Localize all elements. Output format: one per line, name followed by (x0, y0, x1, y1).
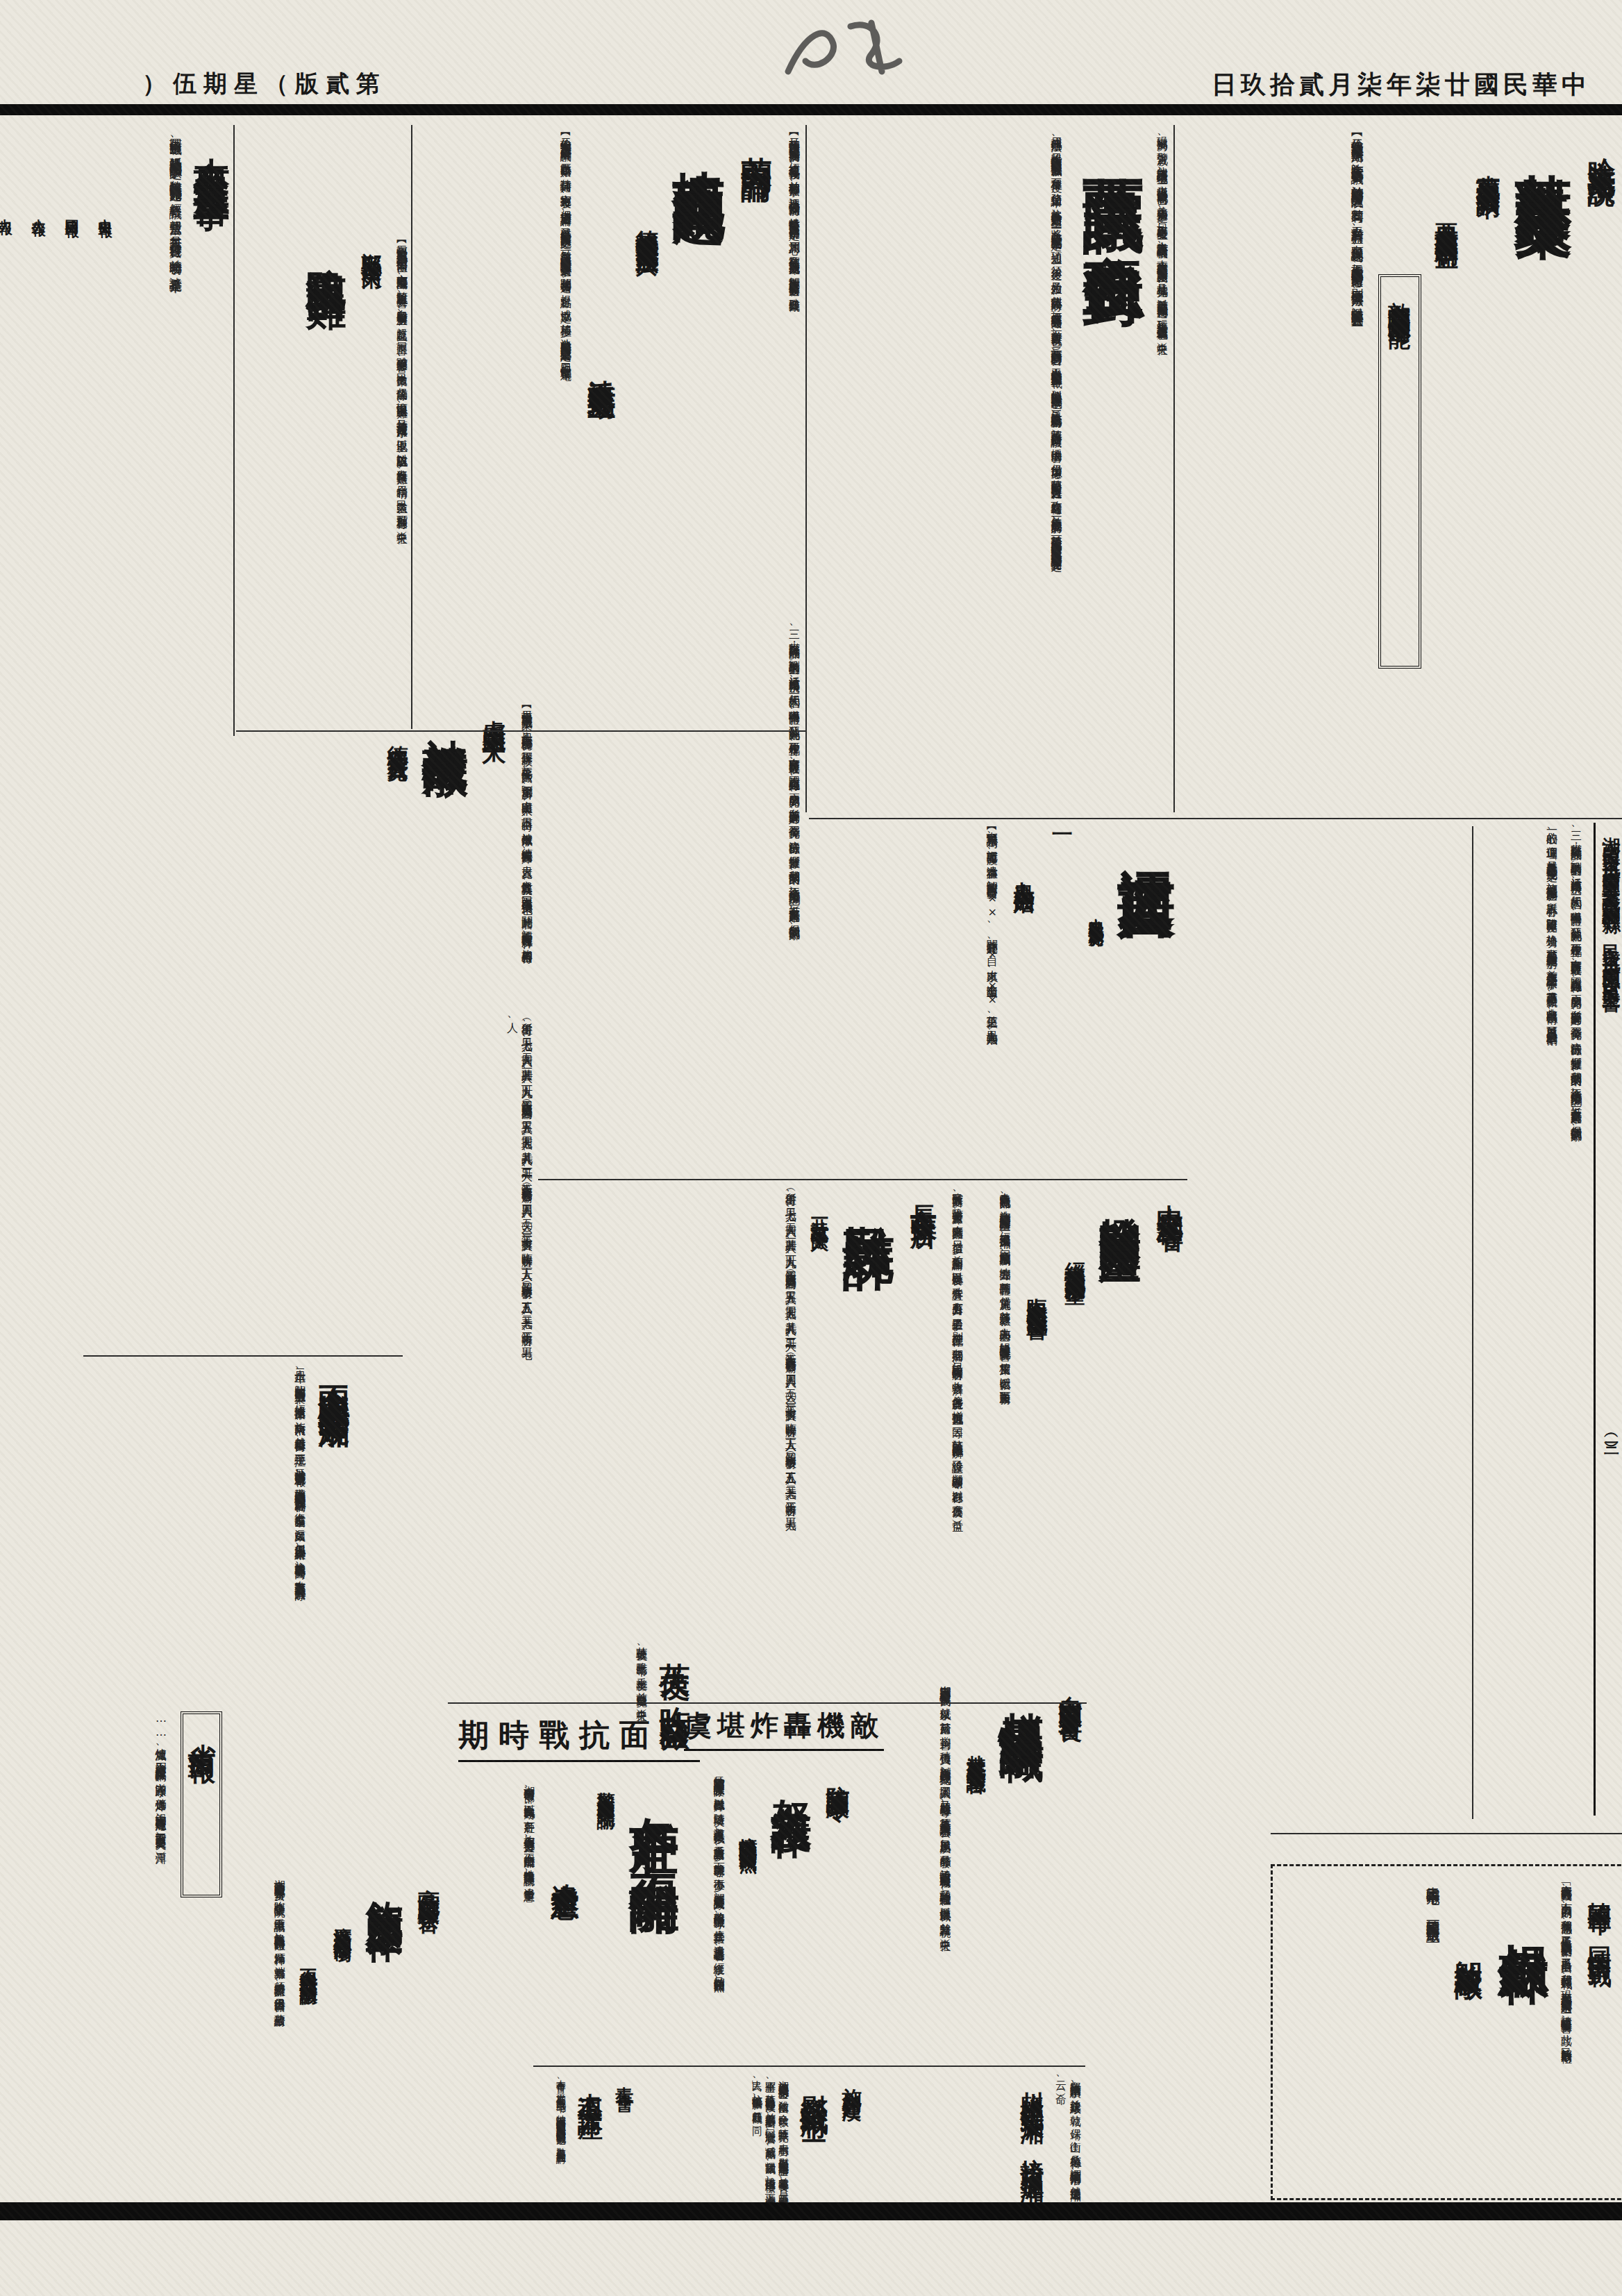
press-notice-paper-list: 中央日報 國民日報 大公報 力報 民國日報 全民日報 市民日報 商報 晨報 衡報… (75, 208, 119, 736)
halifax-subhead-2: 要求日尊重英國在華利益 (1431, 205, 1463, 812)
section-rule (809, 818, 1622, 819)
korean-kicker: 韓國青年 同情中國抗戰 (1584, 1883, 1616, 2188)
article-halifax: 哈立法克斯演說 英對遠東外交政策 克萊琪與宇垣進行談判中 要求日尊重英國在華利益… (1177, 128, 1621, 812)
column-rule (411, 125, 412, 729)
czech-body: 【倫敦二十七日海通電】本日英政府舉行閣議、歷數小時始畢、其詳情如何、官方拒絕發表… (559, 128, 574, 607)
bottom-rule (0, 2202, 1622, 2220)
zhao-headline: 趙恆惕呈請辭職 (998, 1677, 1045, 2059)
jinxi-byline: 中央社戰地特派員郭從周 (1086, 906, 1107, 1173)
halifax-kicker: 哈立法克斯演說 (1583, 135, 1621, 812)
refugee-stats-body: 省難民救濟處、昨呈省府張主席云、查來湘難民、日益增多、前奉鈞座面諭、以難民坐食、… (951, 1184, 965, 1621)
commons-headline-line1: 英下院議員 (1082, 128, 1146, 149)
refugee-stats-cont: 所（寄星街）、男二七七人、女二六四人、共計五四一人、壯丁六九人、第十四收容所（馬… (236, 1014, 535, 1350)
ymca-body: 本市青年會、本星期五（二十九日）下午七時半、特請湖南大學政治學教授伍薆農先生講「… (555, 2072, 568, 2190)
zhao-subhead: 赴漢就任軍委會參議官 (962, 1739, 989, 2059)
high-court-body: 湖南高等法院首席檢察官鄧蟄安、昨訓令各級法院、應重申誥誡、飭各職員務須共體時艱、… (273, 1871, 287, 2184)
hunan-letter-body-2: 心的一般、這個道理、就是「爲北平已在日軍完全控制之下、他們可以無忌憚的壓迫、所以… (1545, 823, 1560, 1809)
zhao-kicker: 自衛團軍參會會長 (1055, 1677, 1087, 2059)
korean-body: 完全依照「有錢出錢、有力出力」的原則、我們不勝感佩、爲了要恢復祖先遺留給我們的基… (1560, 1876, 1574, 2168)
salt-headline-line1: 川鹽推銷代表來湘 (1020, 2072, 1044, 2106)
article-refugee-stats: 省難民救濟處、昨呈省府張主席云、查來湘難民、日益增多、前奉鈞座面諭、以難民坐食、… (538, 1184, 965, 1628)
edition-label: ）伍期星（版貳第 (142, 68, 387, 100)
lushan-body-pre: 【南昌二十八日電】敵機十八架、二十八日上午九時空襲樟樹、投彈三十餘枚、死傷平民六… (520, 701, 535, 1000)
article-salt: 向行署接洽推銷手續、並決定往永綏、乾城、保靖、衡山、桑植等縣、調查實地推銷情形、… (868, 2072, 1083, 2194)
article-press-notice: 本市各日報社重要啓事 茲因長市接近戰區、紙張油墨及其他印刷用品來源缺乏、敝報等爲… (119, 128, 231, 739)
high-court-subhead-1: 淬厲精神相期法治修明 (331, 1913, 356, 2190)
high-court-headline: 飭所屬加緊工作 (365, 1871, 404, 2190)
conscripts-strip: 期時戰抗面全 (458, 1715, 700, 1762)
unknown-planes-body: 二十八日上午、此間據報有不明飛機五架、經修水渣津西來、旋折向南飛、越獻鐘市長壽街… (293, 1361, 308, 1694)
reclamation-subhead-1: 經濟部派員來湘接洽移墾 (1061, 1246, 1089, 1621)
refugee-stats-numbers-2: 所（寄星街）、男二七七人、女二六四人、共計五四一人、壯丁六九人、第十四收容所（馬… (505, 1014, 535, 1343)
reclamation-headline: 撥欵闢難民墾殖區 (1099, 1184, 1142, 1621)
salt-body: 向行署接洽推銷手續、並決定往永綏、乾城、保靖、衡山、桑植等縣、調查實地推銷情形、… (1054, 2072, 1083, 2190)
high-court-subhead-2: 不得泄沓因循藉故請假 (297, 1954, 321, 2190)
section-rule (236, 730, 805, 732)
commons-body: 現歐洲局勢、警告沉寂、此與縮議英國遠東地位、中僅一小部份由於戰事者而已、此爲盡人… (1155, 128, 1170, 795)
article-commons: 現歐洲局勢、警告沉寂、此與縮議英國遠東地位、中僅一小部份由於戰事者而已、此爲盡人… (809, 128, 1170, 812)
czech-kicker: 英內閣討論 (737, 133, 778, 614)
shi-kicker: 施劍翹赴漢 (838, 2072, 864, 2194)
hunan-letter-part-no: （三） (1601, 1428, 1622, 1434)
hunan-letter-title: 湖南省民衆抗日自衛團軍事參議會爲編組各縣 民衆抗日自衛團告全省民衆書 （三） (1594, 823, 1622, 1816)
section-rule (448, 1702, 1087, 1704)
shi-body: 湘抗敵後援總會以我忠勇將士、殺敵衛國、全民欽敬、特匯款八千元、表示慰勞、慰勞保衛… (750, 2072, 789, 2190)
article-zhao: 自衛團軍參會會長 趙恆惕呈請辭職 赴漢就任軍委會參議官 湘自衛團軍事參議會會長趙… (861, 1677, 1087, 2059)
article-hunan-letter: 湖南省民衆抗日自衛團軍事參議會爲編組各縣 民衆抗日自衛團告全省民衆書 （三） 三… (1180, 823, 1622, 1816)
jinxi-body: 【吉縣通訊】六月下旬、記者隨軍西渡、遺跡猶在、卽陝省前路亦自西安出發、××、閻亦… (985, 823, 1000, 1166)
provincial-briefs-title: 省市簡報 (186, 1721, 218, 1738)
article-czech: 【柏林二十八日路透電】捷克少數民族法典摘要、經捷克各報揭載後、柏林各報猛烈抨擊、… (413, 128, 802, 614)
column-rule (1173, 125, 1175, 812)
lushan-headline: 被敵機炸散 (421, 701, 469, 1007)
korean-headline: 捐獻銀杯 (1498, 1904, 1550, 2188)
article-korean-youth: 韓國青年 同情中國抗戰 完全依照「有錢出錢、有力出力」的原則、我們不勝感佩、爲了… (1271, 1864, 1622, 2200)
column-rule (1472, 826, 1473, 1819)
halifax-boxed-subhead: 敵方宣傳英日關係增進不可能 (1378, 274, 1421, 669)
ymca-headline: 本週二大講座 (578, 2072, 603, 2194)
article-unknown-planes: 不明機五架昨窺湘 二十八日上午、此間據報有不明飛機五架、經修水渣津西來、旋折向南… (122, 1361, 351, 1701)
section-rule (83, 1355, 403, 1357)
press-notice-body: 茲因長市接近戰區、紙張油墨及其他印刷用品來源缺乏、敝報等爲減輕戰時負荷鉅艱起見、… (169, 128, 183, 732)
conscripts-headline-line2: 不得離開 (628, 1835, 680, 1852)
salt-headline: 川鹽推銷代表來湘 接洽川鹽運湘 (1020, 2072, 1044, 2194)
handwritten-mark (767, 6, 920, 96)
jinxi-headline: 迂迴入晉西 (1117, 823, 1177, 1173)
korean-kicker-line1: 韓國青年 (1584, 1883, 1616, 1897)
korean-signature: 大韓民國二十年七月 韓國國民黨青年一份子全用武敬上 (1425, 1876, 1440, 2188)
hunan-letter-title-line2: 民衆抗日自衛團告全省民衆書 (1602, 930, 1621, 984)
halifax-subhead-1: 克萊琪與宇垣進行談判中 (1473, 156, 1505, 812)
article-jinxi: 迂迴入晉西 中央社戰地特派員郭從周 一 九十里內無人烟 【吉縣通訊】六月下旬、記… (809, 823, 1177, 1173)
press-notice-headline: 本市各日報社重要啓事 (193, 128, 231, 739)
korean-signature-line2: 韓國國民黨青年一份子全用武敬上 (1425, 1909, 1440, 1920)
shi-headline: 慰勞抗戰將士 (799, 2072, 828, 2194)
zhengxian-headline: 防汎工程困難 (306, 236, 347, 722)
zhao-body: 湘自衛團軍事參議會會長趙恆惕氏、就任以來、於茲兩月、常川到會、積極負責、刻以該會… (938, 1677, 953, 2052)
newspaper-page: ）伍期星（版貳第 日玖拾貳月柒年柒廿國民華中 哈立法克斯演說 英對遠東外交政策 … (0, 0, 1622, 2296)
section-rule (533, 2065, 1085, 2067)
paper-name: 力報 (0, 208, 19, 736)
reclamation-body: 中央爲救濟戰區難民、決在湘桂等省撥欵闢設難民墾殖區、經濟部已派員來湘、商同當地黨… (998, 1184, 1013, 1614)
ymca-kicker: 青年會 (613, 2072, 637, 2194)
paper-name: 國民日報 (58, 208, 86, 736)
zhengxian-kicker: 鄭縣連日大雨 (357, 236, 385, 722)
column-rule (233, 125, 235, 736)
jinxi-subhead: 九十里內無人烟 (1010, 864, 1038, 1173)
uk-ambassador-headline-line2: 昨赴南嶽 (659, 1682, 691, 1699)
article-provincial-briefs: 省市簡報 ……爐灶熄滅、否則亦應將爐灶上設置一鐵鍋、內滿貯冷水、倘遇爆炸、鍋中之… (83, 1711, 229, 2194)
czech-body-cont: 【柏林二十八日路透電】捷克少數民族法典摘要、經捷克各報揭載後、柏林各報猛烈抨擊、… (787, 128, 802, 607)
refugee-stats-headline: 難民統計 (842, 1184, 896, 1628)
section-rule (1271, 1833, 1622, 1834)
lushan-subhead: 德安遭狂炸大火竟日 (383, 729, 411, 1007)
air-defense-strip: 虞堪炸轟機敵 (684, 1707, 884, 1751)
halifax-boxed-text: 敵方宣傳英日關係增進不可能 (1387, 284, 1413, 311)
jinxi-body-cont: 三、從敵軍獸行的殘酷，說到民衆的力量。活活軋得血肉橫飛、年紀大的一個、嚇得魂不附… (538, 621, 802, 1163)
article-high-court: 高院首席檢察官 飭所屬加緊工作 淬厲精神相期法治修明 不得泄沓因循藉故請假 湖南… (236, 1871, 444, 2190)
article-lushan: 【南昌二十八日電】敵機十八架、二十八日上午九時空襲樟樹、投彈三十餘枚、死傷平民六… (236, 701, 535, 1007)
hunan-letter-title-line1: 湖南省民衆抗日自衛團軍事參議會爲編組各縣 (1602, 823, 1621, 906)
article-ymca: 青年會 本週二大講座 本市青年會、本星期五（二十九日）下午七時半、特請湖南大學政… (533, 2072, 637, 2194)
korean-kicker-line2: 同情中國抗戰 (1584, 1928, 1616, 1949)
halifax-headline: 英對遠東外交政策 (1514, 128, 1573, 812)
zhengxian-body: 【鄭州二十八日電】鄭縣自二十六日至二十七日大雨傾盆、市內鄉郊悉成澤國、黃河防汎工… (395, 236, 410, 715)
masthead-rule (0, 104, 1622, 115)
refugee-stats-numbers: 所（寄星街）、男二七七人、女二六四人、共計五四一人、壯丁六九人、第十四收容所（馬… (784, 1184, 799, 1621)
paper-name: 大公報 (25, 208, 53, 736)
unknown-planes-headline: 不明機五架昨窺湘 (317, 1361, 351, 1701)
high-court-kicker: 高院首席檢察官 (414, 1871, 444, 2190)
commons-headline: 英下院議員 主強硬對日 (1082, 128, 1146, 812)
halifax-body: 【倫敦二十八日路透電】外相哈里法克斯、昨在上院代表政府答復各議員、於外交問題辯論… (1350, 128, 1366, 805)
article-shi: 施劍翹赴漢 慰勞抗戰將士 湘抗敵後援總會以我忠勇將士、殺敵衛國、全民欽敬、特匯款… (639, 2072, 864, 2194)
hunan-letter-body: 三、從敵軍獸行的殘酷，說到民衆的力量。活活軋得血肉橫飛、年紀大的一個、嚇得魂不附… (1569, 823, 1584, 1809)
article-reclamation: 中央在湘桂等省 撥欵闢難民墾殖區 經濟部派員來湘接洽移墾 中賑會組難民運送配置會… (969, 1184, 1187, 1621)
jinxi-body-2: 三、從敵軍獸行的殘酷，說到民衆的力量。活活軋得血肉橫飛、年紀大的一個、嚇得魂不附… (787, 621, 802, 1156)
uk-ambassador-headline-line1: 英大使 (659, 1639, 691, 1651)
refugee-stats-kicker: 長市各收容所 (905, 1184, 941, 1628)
refugee-stats-subhead: 共計一萬三千餘人 (808, 1205, 833, 1628)
reclamation-subhead-2: 中賑會組難民運送配置會 (1023, 1281, 1051, 1621)
provincial-briefs-title-box: 省市簡報 (181, 1711, 222, 1897)
commons-body-2: 或用其他辦法、將日本貨物輸入英帝國所屬各地之數額減低、至某種程度、務使加諸日本、… (1049, 128, 1064, 795)
article-zhengxian-flood: 【鄭州二十八日電】鄭縣自二十六日至二十七日大雨傾盆、市內鄉郊悉成澤國、黃河防汎工… (236, 236, 410, 722)
salt-headline-line2: 接洽川鹽運湘 (1020, 2140, 1044, 2165)
korean-signature-line1: 大韓民國二十年七月 (1425, 1876, 1440, 1882)
reclamation-kicker: 中央在湘桂等省 (1152, 1184, 1187, 1621)
lushan-kicker: 盧山難民三千人 (478, 701, 510, 1007)
paper-name: 中央日報 (92, 208, 119, 736)
czech-headline: 捷克與西亂問題 (672, 128, 727, 614)
korean-subhead: 卽赴前線殺敵 (1450, 1938, 1488, 2188)
conscripts-headline-line1: 各戶壯丁 (628, 1777, 680, 1794)
czech-subhead-2: 法重申對捷立場 (583, 358, 621, 614)
date-line: 日玖拾貳月柒年柒廿國民華中 (1212, 68, 1591, 102)
column-rule (805, 125, 807, 812)
section-rule (538, 1179, 1187, 1180)
czech-subhead-1: 德報抨擊捷克少數民族法典 (631, 212, 662, 614)
jinxi-section-no: 一 (1048, 823, 1076, 1173)
commons-headline-line2: 主強硬對日 (1082, 204, 1146, 225)
provincial-briefs-body: ……爐灶熄滅、否則亦應將爐灶上設置一鐵鍋、內滿貯冷水、倘遇爆炸、鍋中之水卽可將爐… (153, 1711, 168, 2187)
